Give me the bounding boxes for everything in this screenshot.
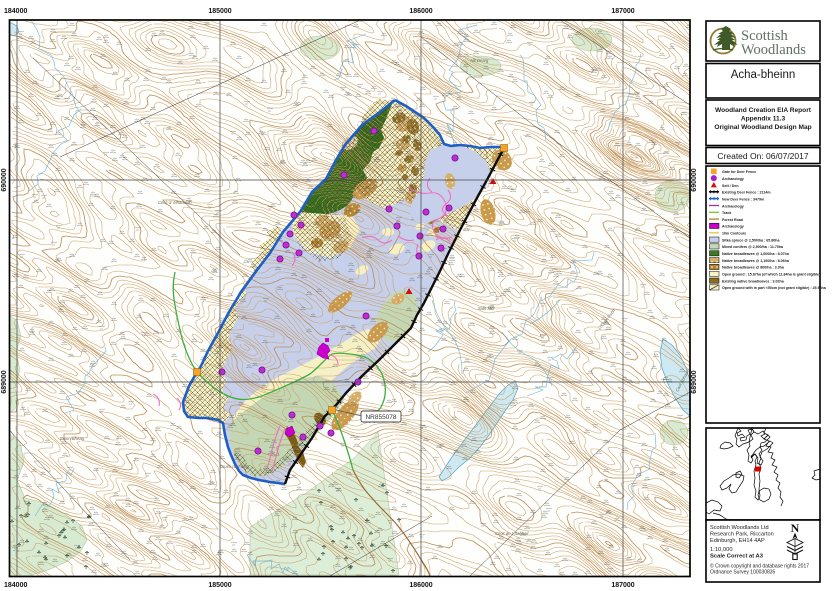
svg-text:Native broadleaves @ 800/ha :: Native broadleaves @ 800/ha : 3.3ha (722, 266, 785, 270)
svg-text:Allt Dearg: Allt Dearg (469, 58, 489, 63)
svg-text:Native broadleaves @ 1,600/ha: Native broadleaves @ 1,600/ha : 8.07ha (722, 252, 790, 256)
svg-text:Sidh Mor: Sidh Mor (478, 306, 495, 311)
svg-text:185000: 185000 (208, 8, 231, 15)
svg-text:Sett / Den: Sett / Den (722, 184, 739, 188)
svg-text:187000: 187000 (611, 8, 634, 15)
svg-text:187000: 187000 (611, 582, 634, 589)
svg-text:Existing Deer Fence : 2114m: Existing Deer Fence : 2114m (722, 191, 771, 195)
svg-text:Ordnance Survey 100030835: Ordnance Survey 100030835 (710, 570, 776, 576)
svg-text:184000: 184000 (4, 8, 27, 15)
svg-text:© Crown copyright and database: © Crown copyright and database rights 20… (710, 563, 809, 570)
svg-text:Scottish Woodlands Ltd: Scottish Woodlands Ltd (710, 525, 769, 531)
svg-text:Created On: 06/07/2017: Created On: 06/07/2017 (717, 151, 808, 161)
svg-text:NR855078: NR855078 (365, 414, 396, 421)
svg-text:1:10,000: 1:10,000 (710, 547, 733, 553)
svg-text:184000: 184000 (4, 582, 27, 589)
svg-text:Gate for Deer Fence: Gate for Deer Fence (722, 170, 756, 174)
svg-text:690000: 690000 (1, 168, 8, 191)
svg-text:Original Woodland Design Map: Original Woodland Design Map (714, 124, 811, 131)
svg-text:Archaeology: Archaeology (722, 225, 744, 229)
svg-text:Scale Correct at A3: Scale Correct at A3 (710, 554, 764, 560)
svg-text:185000: 185000 (208, 582, 231, 589)
svg-text:Druim na Faing: Druim na Faing (220, 464, 249, 469)
svg-text:186000: 186000 (409, 582, 432, 589)
svg-text:689000: 689000 (691, 370, 698, 393)
svg-text:Woodland Creation EIA Report: Woodland Creation EIA Report (715, 107, 812, 114)
svg-text:186000: 186000 (409, 8, 432, 15)
svg-text:Archaeology: Archaeology (722, 177, 744, 181)
svg-text:Open ground with in part <50cm: Open ground with in part <50cm (not gran… (722, 286, 827, 290)
svg-text:690000: 690000 (691, 168, 698, 191)
svg-text:Forest Road: Forest Road (722, 218, 743, 222)
svg-text:Woodlands: Woodlands (741, 42, 806, 58)
svg-text:Appendix 11.3: Appendix 11.3 (741, 116, 786, 123)
svg-text:Cnoc a' Mhadaidh: Cnoc a' Mhadaidh (158, 200, 192, 205)
svg-text:Beinn Bheag: Beinn Bheag (60, 436, 85, 441)
svg-text:Open ground : 15.87ha (of whic: Open ground : 15.87ha (of which 11.84ha … (722, 273, 821, 277)
svg-text:Edinburgh, EH14 4AP: Edinburgh, EH14 4AP (710, 538, 765, 544)
svg-text:Existing native broadleaves :: Existing native broadleaves : 3.02ha (722, 279, 785, 283)
svg-text:Archaeology: Archaeology (722, 204, 744, 208)
svg-text:Sitka spruce @ 2,500/ha : 65.8: Sitka spruce @ 2,500/ha : 65.80ha (722, 238, 780, 242)
svg-text:10m Contours: 10m Contours (722, 232, 746, 236)
svg-text:689000: 689000 (1, 370, 8, 393)
svg-text:Research Park, Riccarton: Research Park, Riccarton (710, 532, 774, 538)
svg-text:New Deer Fence : 3479m: New Deer Fence : 3479m (722, 197, 764, 201)
svg-text:Native broadleaves @ 1,100/ha: Native broadleaves @ 1,100/ha : 8.06ha (722, 259, 790, 263)
svg-text:Track: Track (722, 211, 731, 215)
svg-text:Cnoc an t-Sabhail: Cnoc an t-Sabhail (495, 531, 529, 536)
svg-text:N: N (791, 521, 800, 535)
svg-text:Mixed conifers @ 2,500/ha : 11: Mixed conifers @ 2,500/ha : 11.70ha (722, 245, 784, 249)
svg-text:Acha-bheinn: Acha-bheinn (731, 69, 796, 81)
